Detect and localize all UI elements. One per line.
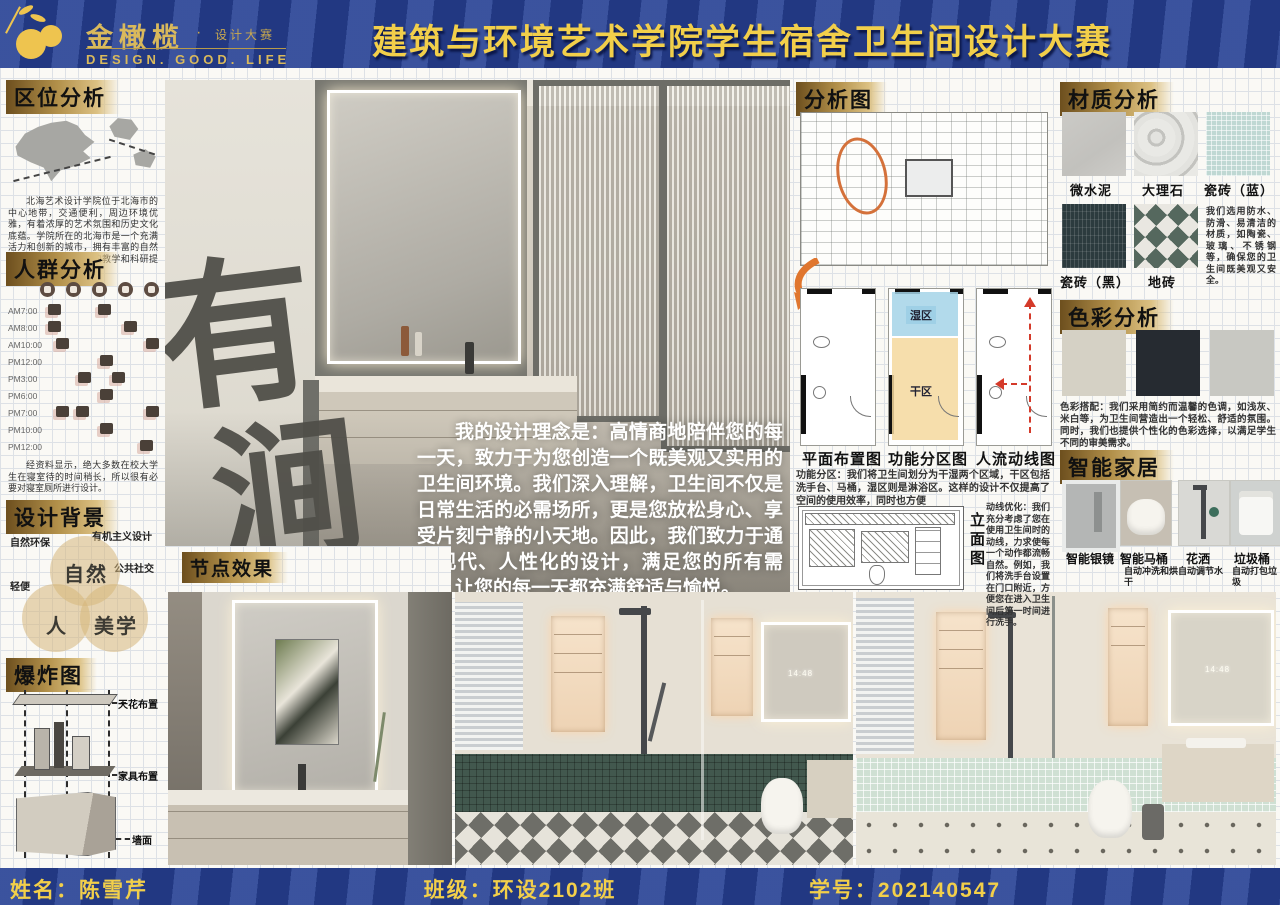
swatch-label: 地砖: [1148, 272, 1176, 291]
window-blinds: [856, 598, 914, 754]
smart-item-name: 智能马桶: [1120, 550, 1168, 567]
smart-item-name: 智能银镜: [1066, 550, 1118, 567]
student-class: 班级：环设2102班: [424, 874, 617, 904]
swatch-label: 瓷砖（蓝）: [1204, 180, 1274, 199]
header-bar: 金橄榄 · 设计大赛 DESIGN. GOOD. LIFE 建筑与环境艺术学院学…: [0, 0, 1280, 68]
shower-head: [619, 608, 651, 615]
student-name: 姓名：陈雪芹: [10, 874, 148, 904]
color-swatch-2: [1136, 330, 1200, 396]
plan-zoning: 湿区 干区: [888, 288, 964, 446]
vanity-cabinet: [1162, 744, 1274, 802]
time-label: AM7:00: [8, 306, 37, 316]
reeded-glass-panel: [533, 80, 665, 422]
swatch-label: 微水泥: [1070, 180, 1112, 199]
toilet-elevation: [869, 565, 885, 585]
render-vanity-detail: [168, 592, 452, 865]
mirror: [327, 90, 521, 364]
toilet: [761, 778, 803, 834]
map-mainland: [8, 116, 102, 184]
time-label: AM10:00: [8, 340, 42, 350]
toilet: [1088, 780, 1132, 838]
activity-icon: [40, 282, 55, 297]
swatch-microcement: [1062, 112, 1126, 176]
brand-tagline: DESIGN. GOOD. LIFE: [86, 52, 290, 67]
circulation-note: 动线优化：我们充分考虑了您在使用卫生间时的动线，力求使每一个动作都流畅自然。例如…: [986, 502, 1050, 592]
time-label: PM10:00: [8, 425, 42, 435]
plan-label: 平面布置图: [802, 448, 882, 469]
activity-marker: [100, 423, 113, 434]
activity-marker: [48, 304, 61, 315]
zoning-note: 功能分区：我们将卫生间划分为干湿两个区域，干区包括洗手台、马桶，湿区则是淋浴区。…: [796, 470, 1050, 504]
time-label: PM6:00: [8, 391, 37, 401]
wall-box: [16, 792, 116, 856]
activity-marker: [140, 440, 153, 451]
window-blinds: [455, 602, 523, 750]
bg-tag: 自然环保: [10, 534, 50, 549]
footer-bar: 姓名：陈雪芹 班级：环设2102班 学号：202140547: [0, 868, 1280, 905]
swatch-tile-blue: [1206, 112, 1270, 176]
shelf-cabinet: [915, 527, 941, 575]
core: [905, 159, 953, 197]
shower-niche: [1108, 608, 1148, 726]
highlight-ellipse: [829, 133, 894, 220]
activity-icon: [66, 282, 81, 297]
smart-item-name: 垃圾桶: [1234, 550, 1270, 567]
section-title-node-effect: 节点效果: [182, 552, 288, 583]
activity-marker: [100, 355, 113, 366]
shower-niche: [711, 618, 753, 716]
circulation-branch: [1001, 383, 1027, 385]
dry-zone: 干区: [892, 338, 958, 440]
activity-marker: [100, 389, 113, 400]
arrow-head: [1024, 297, 1036, 307]
activity-marker: [56, 338, 69, 349]
arrow-head: [995, 378, 1004, 390]
shower-column: [1008, 610, 1013, 760]
poster-board: 金橄榄 · 设计大赛 DESIGN. GOOD. LIFE 建筑与环境艺术学院学…: [0, 0, 1280, 905]
ceiling-slab: [12, 694, 118, 705]
brand-rule: [86, 48, 286, 49]
activity-marker: [98, 304, 111, 315]
shower-niche: [936, 612, 986, 740]
shower-column: [641, 606, 647, 756]
elevation-label: 立面图: [966, 512, 987, 569]
furniture-item: [54, 722, 64, 768]
smart-item-desc: 自动打包垃圾: [1232, 566, 1280, 589]
time-label: PM12:00: [8, 357, 42, 367]
exploded-view-diagram: 天花布置 家具布置 墙面: [8, 688, 160, 864]
palette-note: 色彩搭配：我们采用简约而温馨的色调，如浅灰、米白等，为卫生间营造出一个轻松、舒适…: [1060, 402, 1276, 446]
glass-panel-edge: [701, 600, 704, 840]
smart-mirror-image: [1062, 480, 1120, 552]
venn-label: 自然: [64, 558, 108, 587]
smart-item-desc: 自动冲洗和烘干: [1124, 566, 1180, 589]
furniture-item: [34, 728, 50, 770]
calligraphy-char-1: 有: [165, 247, 324, 423]
activity-marker: [78, 372, 91, 383]
mirror: 14:48: [761, 622, 851, 722]
brand-dot: ·: [196, 24, 201, 42]
brand-name: 金橄榄: [86, 16, 185, 55]
vanity-cabinet: [807, 760, 853, 818]
china-map: [8, 110, 158, 194]
section-title-smart-home: 智能家居: [1060, 450, 1174, 484]
render-green-bathroom: 14:48: [856, 592, 1276, 865]
dry-zone-label: 干区: [906, 382, 936, 400]
plan-layout: [800, 288, 876, 446]
olive-logo-icon: [10, 3, 72, 65]
activity-marker: [146, 338, 159, 349]
swatch-tile-black: [1062, 204, 1126, 268]
time-label: PM12:00: [8, 442, 42, 452]
trash-bin-image: [1230, 480, 1280, 546]
time-label: PM3:00: [8, 374, 37, 384]
mirror-clock: 14:48: [788, 669, 813, 678]
dotted-floor: [856, 812, 1276, 865]
basin: [1186, 738, 1246, 748]
trash-bin: [1142, 804, 1164, 840]
map-inset-1: [106, 116, 140, 142]
shower-set-image: [1178, 480, 1230, 546]
activity-marker: [48, 321, 61, 332]
door-edge: [408, 592, 452, 865]
location-note: 北海艺术设计学院位于北海市的中心地带，交通便利，周边环境优雅，有着浓厚的艺术氛围…: [8, 196, 158, 252]
crowd-note: 经资料显示，绝大多数在校大学生在寝室待的时间稍长，所以很有必要对寝室厕所进行设计…: [8, 460, 158, 498]
activity-marker: [146, 406, 159, 417]
venn-label: 美学: [94, 610, 138, 639]
design-background-diagram: 自然环保 有机主义设计 轻便 公共社交 自然 人 美学: [8, 528, 158, 654]
furniture-item: [72, 736, 90, 770]
smart-item-desc: 自动调节水: [1178, 566, 1234, 577]
activity-icon: [118, 282, 133, 297]
furniture-slab: [14, 766, 115, 776]
activity-marker: [124, 321, 137, 332]
activity-marker: [112, 372, 125, 383]
circulation-arrow: [1029, 303, 1031, 433]
student-id: 学号：202140547: [809, 874, 1001, 904]
wet-zone: 湿区: [892, 292, 958, 336]
section-title-analysis: 分析图: [796, 82, 887, 116]
activity-icon: [92, 282, 107, 297]
bottle: [401, 326, 409, 356]
bottle: [415, 332, 422, 356]
smart-toilet-image: [1120, 480, 1172, 546]
color-swatch-3: [1210, 330, 1274, 396]
exploded-label: 天花布置: [118, 696, 158, 711]
reeded-glass-door: [661, 80, 790, 452]
design-concept-text: 我的设计理念是：高情商地陪伴您的每一天，致力于为您创造一个既美观又实用的卫生间环…: [417, 420, 783, 586]
section-title-crowd: 人群分析: [6, 252, 120, 286]
swatch-label: 瓷砖（黑）: [1060, 272, 1130, 291]
render-shower-room: 14:48: [455, 592, 853, 865]
exploded-label: 家具布置: [118, 768, 158, 783]
materials-note: 我们选用防水、防滑、易清洁的材质，如陶瓷、玻璃、不锈钢等，确保您的卫生间既美观又…: [1206, 206, 1276, 268]
mirror-clock: 14:48: [1205, 665, 1230, 674]
exploded-label: 墙面: [132, 832, 152, 847]
map-connector-2: [109, 139, 155, 156]
activity-marker: [76, 406, 89, 417]
poster-title: 建筑与环境艺术学院学生宿舍卫生间设计大赛: [372, 14, 1112, 65]
faucet: [465, 342, 474, 374]
activity-icon: [144, 282, 159, 297]
plan-label: 人流动线图: [976, 448, 1056, 469]
swatch-label: 大理石: [1142, 180, 1184, 199]
art-print: [275, 639, 339, 745]
section-title-materials: 材质分析: [1060, 82, 1174, 116]
faucet: [298, 764, 306, 790]
brand-subtitle: 设计大赛: [215, 26, 275, 43]
counter: [315, 376, 577, 392]
swatch-marble: [1134, 112, 1198, 176]
building-floor-plan: [800, 112, 1048, 266]
crowd-schedule-chart: AM7:00 AM8:00 AM10:00 PM12:00 PM3:00 PM6…: [8, 282, 158, 456]
swatch-floor-tile: [1134, 204, 1198, 268]
activity-marker: [56, 406, 69, 417]
section-title-palette: 色彩分析: [1060, 300, 1174, 334]
bg-tag: 公共社交: [114, 560, 154, 575]
plan-circulation: [976, 288, 1052, 446]
smart-item-name: 花洒: [1186, 550, 1210, 567]
hero-render: 有 涧 我的设计理念是：高情商地陪伴您的每一天，致力于为您创造一个既美观又实用的…: [165, 80, 790, 592]
venn-label: 人: [46, 610, 68, 639]
time-label: PM7:00: [8, 408, 37, 418]
shower-niche: [551, 616, 605, 732]
mirror: 14:48: [1168, 610, 1274, 726]
color-swatch-1: [1062, 330, 1126, 396]
bg-tag: 轻便: [10, 578, 30, 593]
time-label: AM8:00: [8, 323, 37, 333]
wet-zone-label: 湿区: [906, 306, 936, 324]
plan-label: 功能分区图: [888, 448, 968, 469]
section-title-location: 区位分析: [6, 80, 120, 114]
section-title-exploded: 爆炸图: [6, 658, 97, 692]
elevation-drawing: [798, 506, 964, 590]
